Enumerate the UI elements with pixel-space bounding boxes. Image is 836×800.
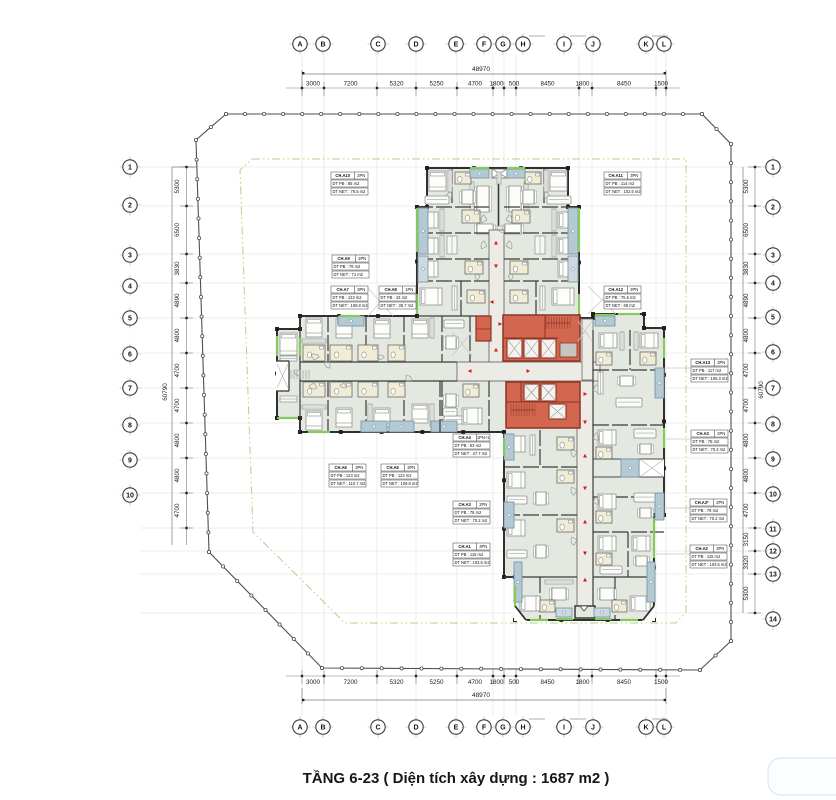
svg-text:8450: 8450 <box>617 679 632 686</box>
svg-text:6: 6 <box>128 352 132 359</box>
svg-text:3: 3 <box>128 253 132 260</box>
svg-text:DT PB : 75.5 m2: DT PB : 75.5 m2 <box>606 295 637 300</box>
svg-text:2PN: 2PN <box>630 287 638 292</box>
svg-text:14: 14 <box>769 617 777 624</box>
svg-text:5: 5 <box>128 316 132 323</box>
svg-text:DT NET : 70.2 m2: DT NET : 70.2 m2 <box>455 518 489 523</box>
svg-text:4890: 4890 <box>174 293 181 308</box>
svg-text:6500: 6500 <box>743 223 750 238</box>
svg-text:4700: 4700 <box>174 503 181 518</box>
svg-text:CH.A6: CH.A6 <box>335 465 348 470</box>
svg-text:I: I <box>563 42 565 49</box>
svg-text:C: C <box>375 725 380 732</box>
svg-text:3PN: 3PN <box>357 287 365 292</box>
svg-text:G: G <box>500 725 506 732</box>
svg-text:8: 8 <box>128 423 132 430</box>
svg-text:3PN: 3PN <box>717 360 725 365</box>
svg-text:CH.A2: CH.A2 <box>696 546 709 551</box>
svg-text:8: 8 <box>771 422 775 429</box>
svg-text:5300: 5300 <box>174 179 181 194</box>
svg-text:1: 1 <box>771 165 775 172</box>
svg-text:C: C <box>375 42 380 49</box>
svg-text:B: B <box>320 42 325 49</box>
svg-text:1PN: 1PN <box>405 287 413 292</box>
svg-text:DT PB : 78 m2: DT PB : 78 m2 <box>693 439 720 444</box>
svg-text:E: E <box>454 42 459 49</box>
svg-text:5300: 5300 <box>743 179 750 194</box>
svg-text:F: F <box>482 42 487 49</box>
svg-text:DT PB : 115 m2: DT PB : 115 m2 <box>455 552 484 557</box>
svg-text:8450: 8450 <box>540 679 555 686</box>
svg-text:DT NET : 38.7 m2: DT NET : 38.7 m2 <box>381 303 415 308</box>
svg-text:DT NET : 109.8 m2: DT NET : 109.8 m2 <box>383 481 419 486</box>
svg-text:3000: 3000 <box>306 81 321 88</box>
svg-text:7: 7 <box>771 386 775 393</box>
svg-text:DT PB : 78 m2: DT PB : 78 m2 <box>455 510 482 515</box>
svg-text:3PN: 3PN <box>630 173 638 178</box>
svg-text:8450: 8450 <box>617 81 632 88</box>
svg-text:48970: 48970 <box>472 692 490 699</box>
svg-text:6: 6 <box>771 350 775 357</box>
svg-text:5: 5 <box>771 315 775 322</box>
svg-text:1800: 1800 <box>489 81 504 88</box>
svg-text:1800: 1800 <box>575 81 590 88</box>
svg-text:5250: 5250 <box>429 81 444 88</box>
svg-text:7200: 7200 <box>343 679 358 686</box>
svg-text:E: E <box>454 725 459 732</box>
svg-text:11: 11 <box>769 527 777 534</box>
svg-text:CH.A3: CH.A3 <box>459 502 472 507</box>
svg-text:DT PB : 117 m2: DT PB : 117 m2 <box>693 368 722 373</box>
svg-text:9: 9 <box>128 458 132 465</box>
svg-text:3150: 3150 <box>743 532 750 547</box>
svg-text:F: F <box>482 725 487 732</box>
svg-text:DT NET : 103.5 m2: DT NET : 103.5 m2 <box>692 562 728 567</box>
svg-text:4700: 4700 <box>174 398 181 413</box>
svg-text:DT PB : 43 m2: DT PB : 43 m2 <box>381 295 408 300</box>
svg-text:CH.A1: CH.A1 <box>459 544 472 549</box>
svg-text:3830: 3830 <box>174 261 181 276</box>
svg-text:DT PB : 122 m2: DT PB : 122 m2 <box>383 473 413 478</box>
svg-text:4800: 4800 <box>174 468 181 483</box>
svg-text:G: G <box>500 42 506 49</box>
svg-text:5250: 5250 <box>429 679 444 686</box>
svg-text:I: I <box>563 725 565 732</box>
svg-text:4: 4 <box>771 281 775 288</box>
svg-text:7200: 7200 <box>343 81 358 88</box>
svg-text:5300: 5300 <box>743 586 750 601</box>
svg-text:DT NET : 103.5 m2: DT NET : 103.5 m2 <box>455 560 491 565</box>
svg-text:4890: 4890 <box>743 293 750 308</box>
svg-text:60790: 60790 <box>758 381 765 399</box>
svg-text:2PN: 2PN <box>717 431 725 436</box>
svg-text:3320: 3320 <box>743 555 750 570</box>
svg-text:TẦNG 6-23 ( Diện tích xây dựng: TẦNG 6-23 ( Diện tích xây dựng : 1687 m2… <box>303 770 610 787</box>
svg-text:A: A <box>297 42 302 49</box>
svg-text:DT NET : 47.7 m2: DT NET : 47.7 m2 <box>455 451 489 456</box>
svg-text:CH.A3: CH.A3 <box>697 431 710 436</box>
svg-text:4800: 4800 <box>174 433 181 448</box>
svg-text:D: D <box>413 42 418 49</box>
svg-text:CH.A13: CH.A13 <box>695 360 710 365</box>
svg-text:4800: 4800 <box>743 328 750 343</box>
svg-text:DT NET : 70.2 m2: DT NET : 70.2 m2 <box>692 516 726 521</box>
svg-text:4700: 4700 <box>743 503 750 518</box>
svg-text:DT PB : 122 m2: DT PB : 122 m2 <box>333 295 363 300</box>
svg-text:CH.A4: CH.A4 <box>459 435 472 440</box>
svg-text:CH.A7: CH.A7 <box>337 287 350 292</box>
svg-text:CH.A10: CH.A10 <box>335 173 350 178</box>
svg-text:L: L <box>662 42 667 49</box>
svg-text:2PN: 2PN <box>357 173 365 178</box>
svg-text:6500: 6500 <box>174 223 181 238</box>
svg-text:4800: 4800 <box>743 468 750 483</box>
svg-text:60790: 60790 <box>162 383 169 401</box>
svg-text:500: 500 <box>509 81 520 88</box>
svg-text:CH.A9: CH.A9 <box>338 256 351 261</box>
svg-text:DT NET : 70.2 m2: DT NET : 70.2 m2 <box>693 447 727 452</box>
svg-text:4700: 4700 <box>468 81 483 88</box>
svg-text:4800: 4800 <box>743 433 750 448</box>
svg-text:9: 9 <box>771 457 775 464</box>
svg-text:3PN: 3PN <box>716 546 724 551</box>
svg-text:2PN: 2PN <box>479 502 487 507</box>
svg-text:12: 12 <box>769 549 777 556</box>
svg-text:500: 500 <box>509 679 520 686</box>
svg-text:DT NET : 68 m2: DT NET : 68 m2 <box>606 303 636 308</box>
svg-text:K: K <box>643 42 648 49</box>
svg-text:DT PB : 115 m2: DT PB : 115 m2 <box>692 554 721 559</box>
svg-text:DT NET : 71 m2: DT NET : 71 m2 <box>334 272 364 277</box>
svg-text:CH.A8: CH.A8 <box>385 287 398 292</box>
svg-text:DT PB : 114 m2: DT PB : 114 m2 <box>606 181 635 186</box>
svg-text:4700: 4700 <box>468 679 483 686</box>
svg-text:5320: 5320 <box>389 679 404 686</box>
svg-text:DT NET : 76.5 m2: DT NET : 76.5 m2 <box>333 189 367 194</box>
svg-text:3: 3 <box>771 253 775 260</box>
svg-text:48970: 48970 <box>472 66 490 73</box>
svg-text:K: K <box>643 725 648 732</box>
svg-text:DT PB : 53 m2: DT PB : 53 m2 <box>455 443 482 448</box>
svg-text:2PN: 2PN <box>716 500 724 505</box>
svg-text:3PN: 3PN <box>407 465 415 470</box>
svg-text:3830: 3830 <box>743 261 750 276</box>
svg-text:DT NET : 109.8 m2: DT NET : 109.8 m2 <box>333 303 369 308</box>
svg-text:CH.A5: CH.A5 <box>387 465 400 470</box>
svg-text:7: 7 <box>128 386 132 393</box>
svg-text:B: B <box>320 725 325 732</box>
svg-text:4700: 4700 <box>743 398 750 413</box>
svg-text:DT PB : 85 m2: DT PB : 85 m2 <box>333 181 360 186</box>
svg-text:1PN+1: 1PN+1 <box>477 435 490 440</box>
svg-text:13: 13 <box>769 572 777 579</box>
svg-text:3000: 3000 <box>306 679 321 686</box>
svg-text:1: 1 <box>128 165 132 172</box>
svg-text:DT PB : 78 m2: DT PB : 78 m2 <box>692 508 719 513</box>
svg-text:2PN: 2PN <box>358 256 366 261</box>
svg-text:CH.A11: CH.A11 <box>609 173 624 178</box>
svg-text:1800: 1800 <box>489 679 504 686</box>
svg-text:DT NET : 110.7 m2: DT NET : 110.7 m2 <box>331 481 367 486</box>
svg-text:2: 2 <box>771 205 775 212</box>
svg-text:4700: 4700 <box>174 363 181 378</box>
svg-text:1500: 1500 <box>654 679 669 686</box>
svg-text:4700: 4700 <box>743 363 750 378</box>
svg-text:10: 10 <box>126 493 134 500</box>
svg-text:1500: 1500 <box>654 81 669 88</box>
svg-text:3PN: 3PN <box>479 544 487 549</box>
svg-text:H: H <box>520 725 525 732</box>
svg-text:CH.A3*: CH.A3* <box>695 500 709 505</box>
svg-text:4800: 4800 <box>174 328 181 343</box>
svg-text:H: H <box>520 42 525 49</box>
svg-text:D: D <box>413 725 418 732</box>
svg-text:DT NET : 105.3 m2: DT NET : 105.3 m2 <box>693 376 729 381</box>
svg-text:10: 10 <box>769 492 777 499</box>
svg-text:A: A <box>297 725 302 732</box>
svg-text:L: L <box>662 725 667 732</box>
svg-text:DT PB : 123 m2: DT PB : 123 m2 <box>331 473 361 478</box>
svg-text:5320: 5320 <box>389 81 404 88</box>
svg-text:4: 4 <box>128 284 132 291</box>
svg-text:2: 2 <box>128 203 132 210</box>
svg-text:1800: 1800 <box>575 679 590 686</box>
svg-text:J: J <box>591 725 595 732</box>
svg-text:DT PB : 79 m2: DT PB : 79 m2 <box>334 264 361 269</box>
svg-text:DT NET : 102.6 m2: DT NET : 102.6 m2 <box>606 189 642 194</box>
svg-text:CH.A12: CH.A12 <box>608 287 623 292</box>
svg-text:J: J <box>591 42 595 49</box>
svg-text:8450: 8450 <box>540 81 555 88</box>
svg-text:3PN: 3PN <box>355 465 363 470</box>
